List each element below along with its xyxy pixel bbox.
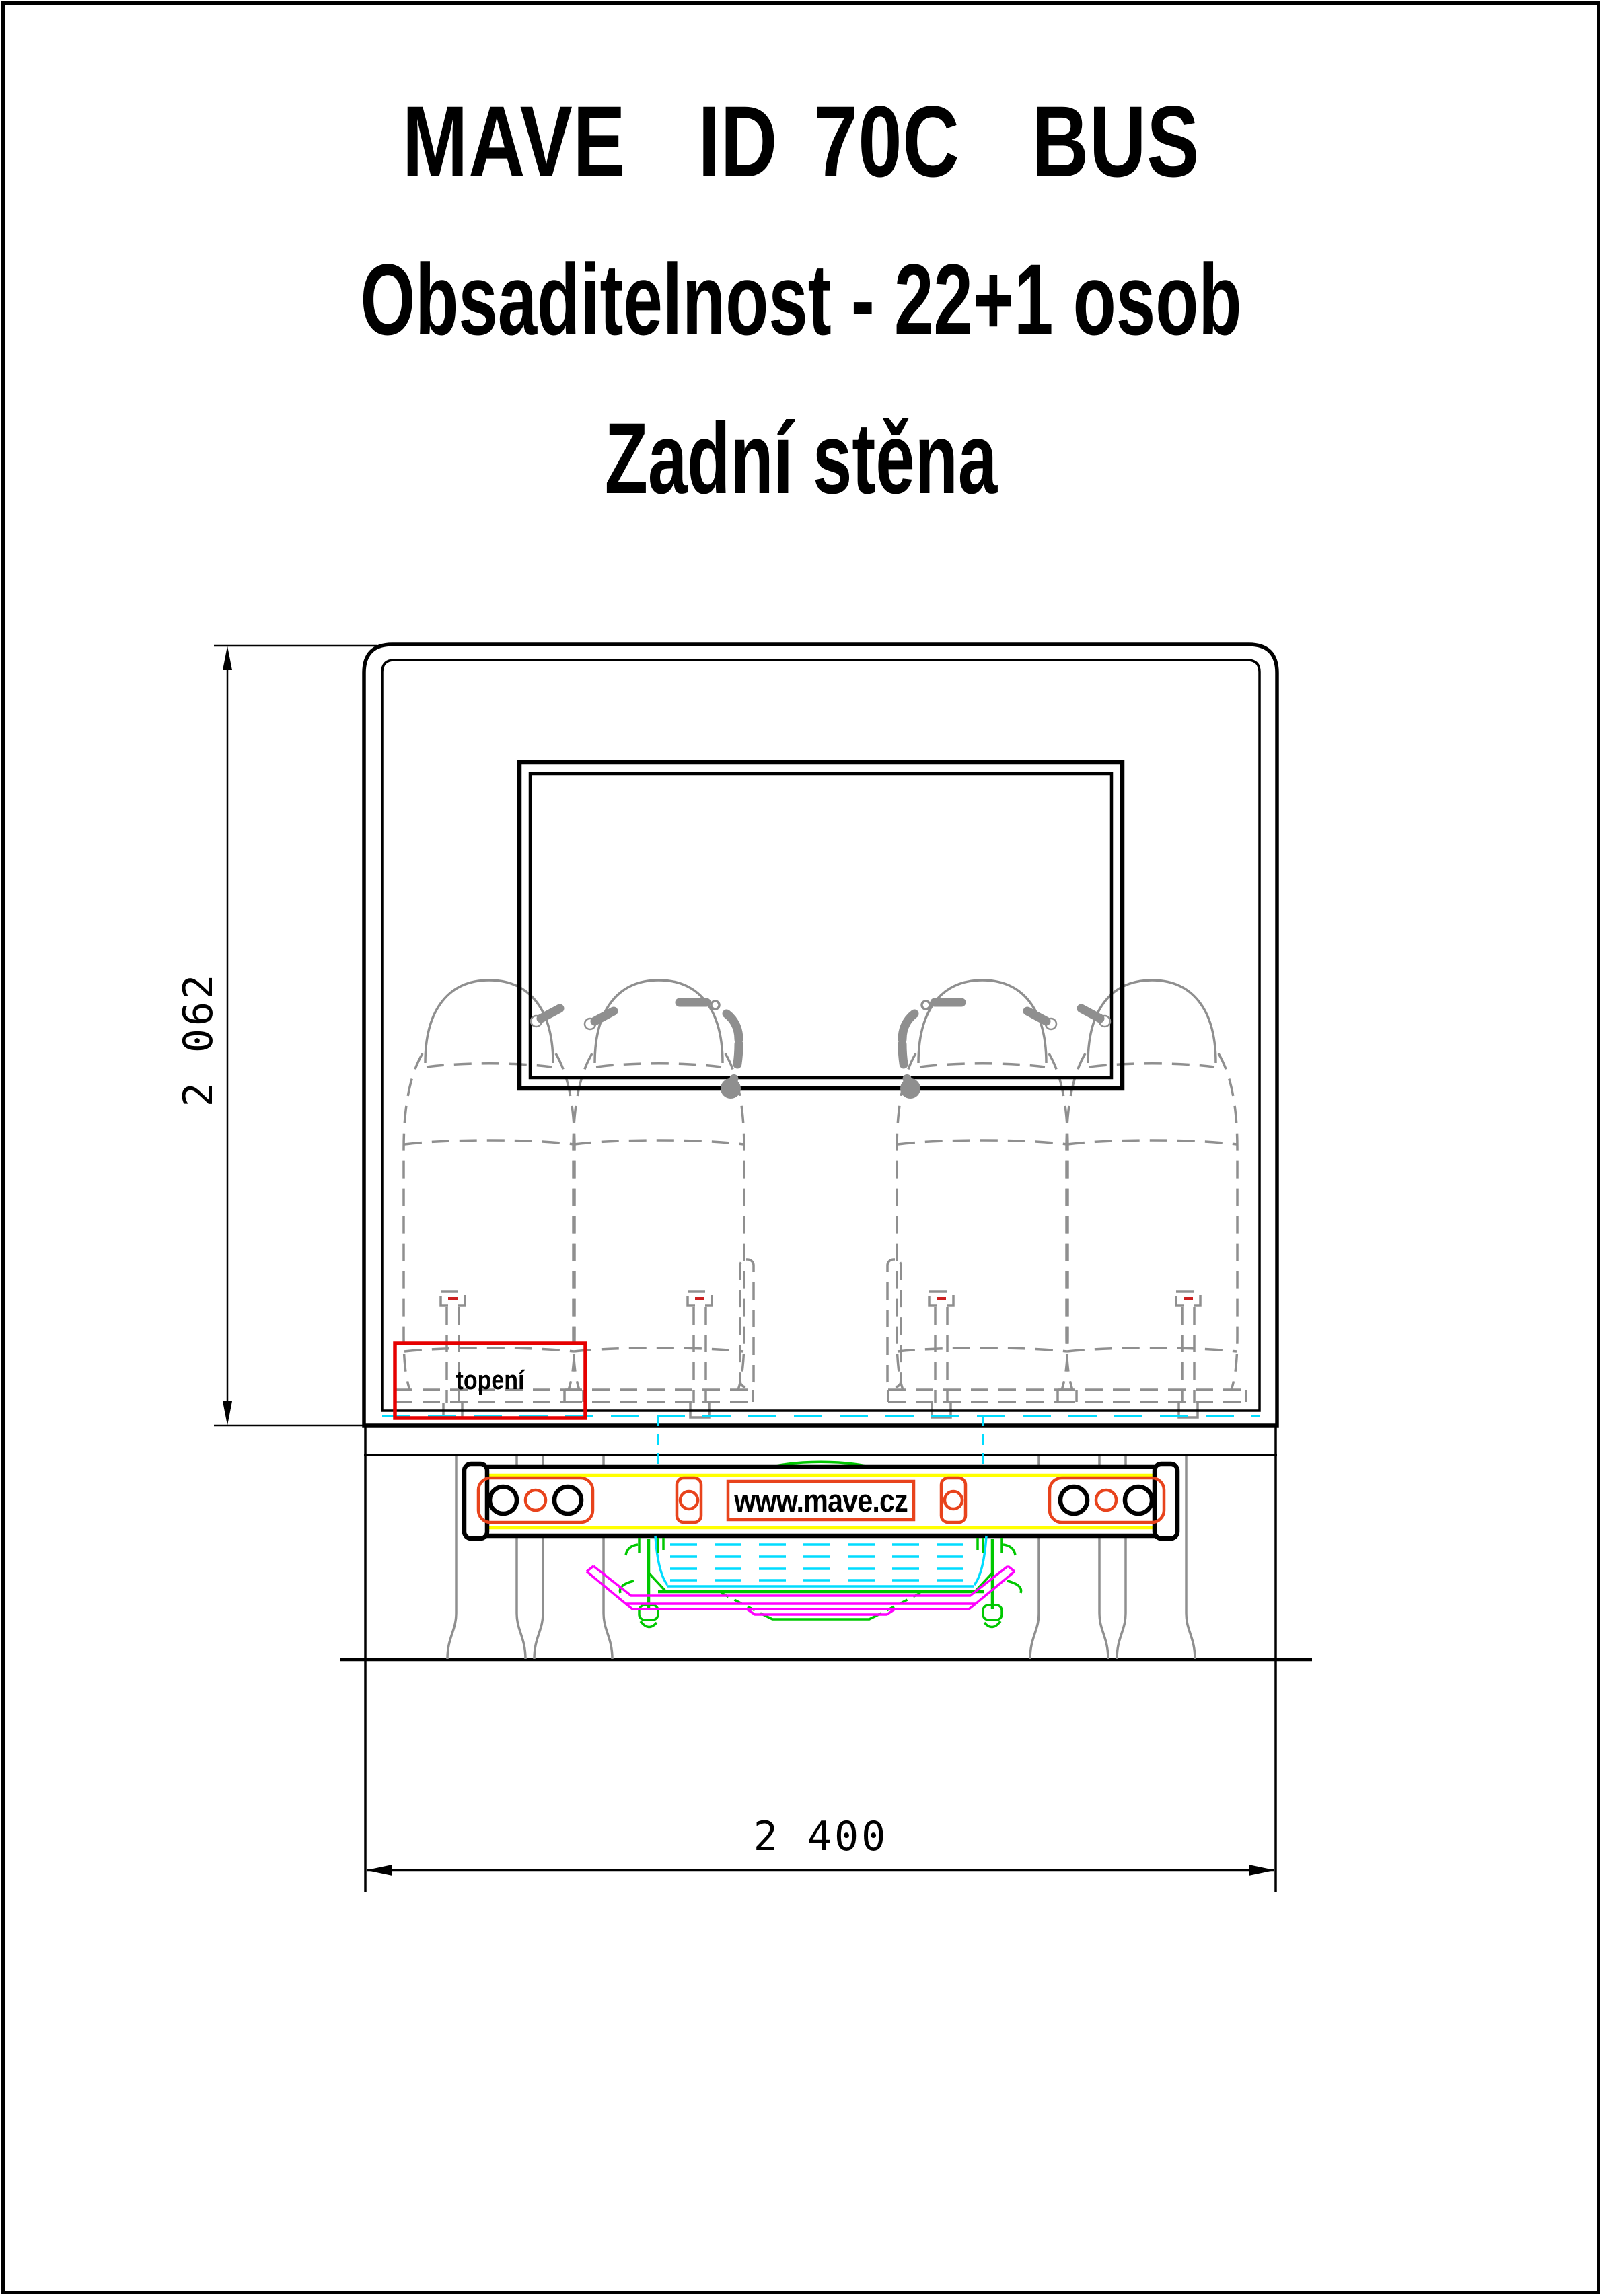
heating-label: topení <box>409 1343 571 1418</box>
bus-body-outline <box>364 644 1277 1892</box>
dimension-height-value: 2 062 <box>176 949 221 1130</box>
dimension-height <box>214 646 377 1425</box>
fuel-tank <box>655 1536 986 1586</box>
drawing-page: MAVE ID 70C BUS Obsaditelnost - 22+1 oso… <box>0 0 1602 2296</box>
dimension-width <box>367 1865 1274 1876</box>
rear-window <box>519 762 1122 1088</box>
technical-drawing <box>0 0 1602 2296</box>
dimension-width-value: 2 400 <box>727 1815 915 1858</box>
seatbelt-hardware <box>531 1001 1110 1387</box>
bumper-url-label: www.mave.cz <box>739 1481 903 1520</box>
rear-mechanism <box>587 1536 1021 1627</box>
